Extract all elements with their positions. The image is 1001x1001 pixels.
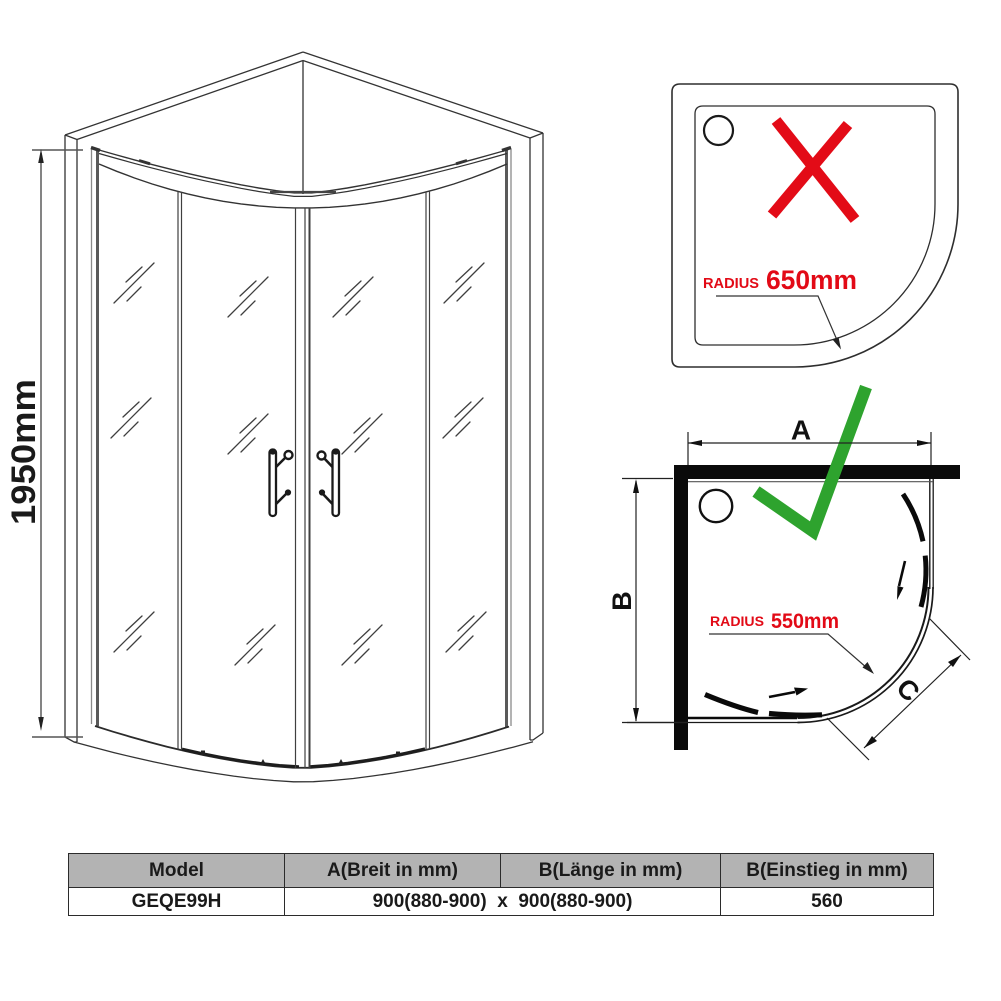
svg-text:B: B bbox=[607, 591, 637, 611]
svg-text:RADIUS: RADIUS bbox=[703, 276, 759, 292]
svg-text:A: A bbox=[791, 415, 811, 446]
svg-text:650mm: 650mm bbox=[766, 265, 857, 295]
svg-text:C: C bbox=[890, 672, 925, 707]
svg-text:550mm: 550mm bbox=[771, 610, 839, 633]
svg-text:1950mm: 1950mm bbox=[5, 379, 43, 525]
svg-text:RADIUS: RADIUS bbox=[710, 614, 764, 629]
